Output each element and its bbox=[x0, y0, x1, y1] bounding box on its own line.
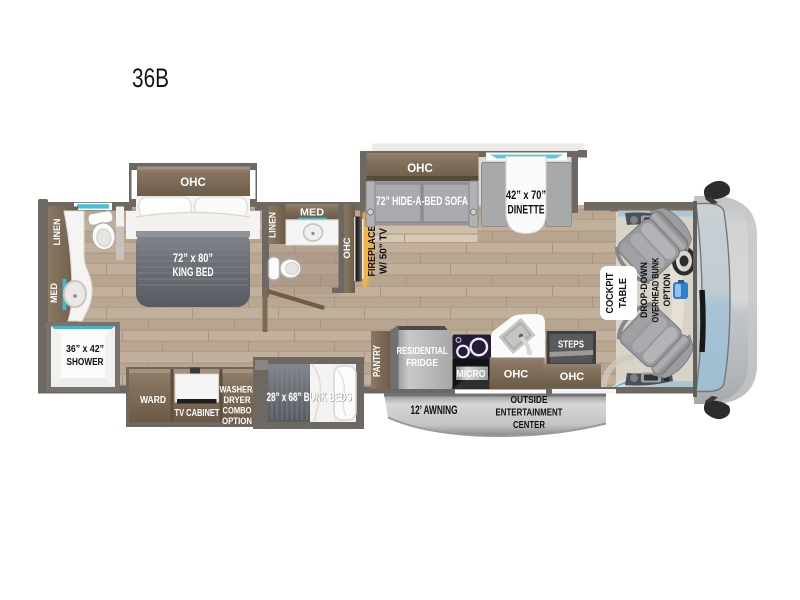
svg-text:OPTION: OPTION bbox=[662, 273, 673, 306]
svg-text:PANTRY: PANTRY bbox=[372, 345, 383, 377]
svg-text:ENTERTAINMENT: ENTERTAINMENT bbox=[496, 407, 563, 419]
svg-text:36B: 36B bbox=[132, 63, 169, 93]
svg-text:MED: MED bbox=[300, 207, 324, 219]
svg-text:TV CABINET: TV CABINET bbox=[175, 408, 220, 419]
svg-text:MED: MED bbox=[49, 283, 60, 303]
svg-text:LINEN: LINEN bbox=[268, 212, 278, 238]
svg-text:OUTSIDE: OUTSIDE bbox=[511, 394, 548, 406]
svg-text:SHOWER: SHOWER bbox=[67, 356, 104, 368]
svg-text:OHC: OHC bbox=[342, 237, 353, 258]
svg-text:CENTER: CENTER bbox=[513, 419, 545, 431]
svg-text:OPTION: OPTION bbox=[222, 416, 252, 427]
svg-text:36” x 42”: 36” x 42” bbox=[66, 343, 104, 355]
svg-text:12’ AWNING: 12’ AWNING bbox=[411, 405, 458, 417]
svg-text:72” HIDE-A-BED SOFA: 72” HIDE-A-BED SOFA bbox=[376, 196, 468, 208]
svg-text:FIREPLACE: FIREPLACE bbox=[367, 225, 378, 276]
svg-text:DROP-DOWN: DROP-DOWN bbox=[639, 262, 650, 318]
svg-text:WASHER/: WASHER/ bbox=[220, 385, 255, 396]
svg-text:28” x 68” BUNK BEDS: 28” x 68” BUNK BEDS bbox=[267, 392, 352, 404]
svg-text:DINETTE: DINETTE bbox=[508, 203, 545, 217]
svg-text:OHC: OHC bbox=[407, 163, 433, 175]
svg-text:COMBO: COMBO bbox=[223, 406, 252, 417]
svg-text:KING BED: KING BED bbox=[173, 267, 214, 279]
svg-text:COCKPIT: COCKPIT bbox=[605, 273, 616, 314]
svg-text:WARD: WARD bbox=[140, 395, 166, 406]
svg-text:LINEN: LINEN bbox=[52, 218, 63, 245]
svg-text:STEPS: STEPS bbox=[558, 339, 584, 351]
svg-text:42” x 70”: 42” x 70” bbox=[506, 188, 546, 202]
svg-text:OHC: OHC bbox=[504, 369, 529, 381]
svg-text:72” x 80”: 72” x 80” bbox=[173, 253, 213, 265]
svg-text:OHC: OHC bbox=[560, 371, 585, 383]
svg-text:W/ 50” TV: W/ 50” TV bbox=[379, 228, 390, 274]
svg-text:TABLE: TABLE bbox=[618, 278, 629, 308]
svg-text:MICRO: MICRO bbox=[457, 369, 486, 380]
svg-text:RESIDENTIAL: RESIDENTIAL bbox=[397, 345, 448, 357]
svg-text:FRIDGE: FRIDGE bbox=[406, 357, 438, 369]
svg-text:OHC: OHC bbox=[180, 177, 206, 189]
svg-text:DRYER: DRYER bbox=[224, 395, 251, 406]
svg-text:OVERHEAD BUNK: OVERHEAD BUNK bbox=[651, 257, 662, 322]
